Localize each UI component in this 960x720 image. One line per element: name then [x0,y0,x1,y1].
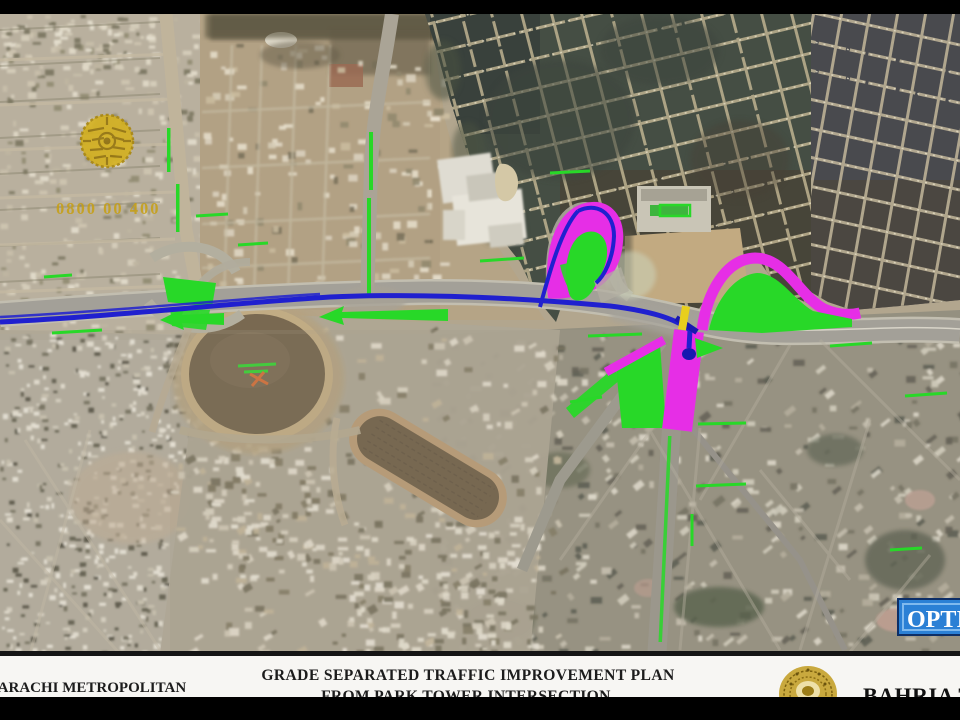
svg-text:GRADE SEPARATED TRAFFIC IMPROV: GRADE SEPARATED TRAFFIC IMPROVEMENT PLAN [261,667,675,684]
svg-text:0800 00 400: 0800 00 400 [56,199,161,218]
svg-text:KARACHI METROPOLITAN: KARACHI METROPOLITAN [0,680,186,696]
svg-text:OPTI: OPTI [907,607,960,633]
